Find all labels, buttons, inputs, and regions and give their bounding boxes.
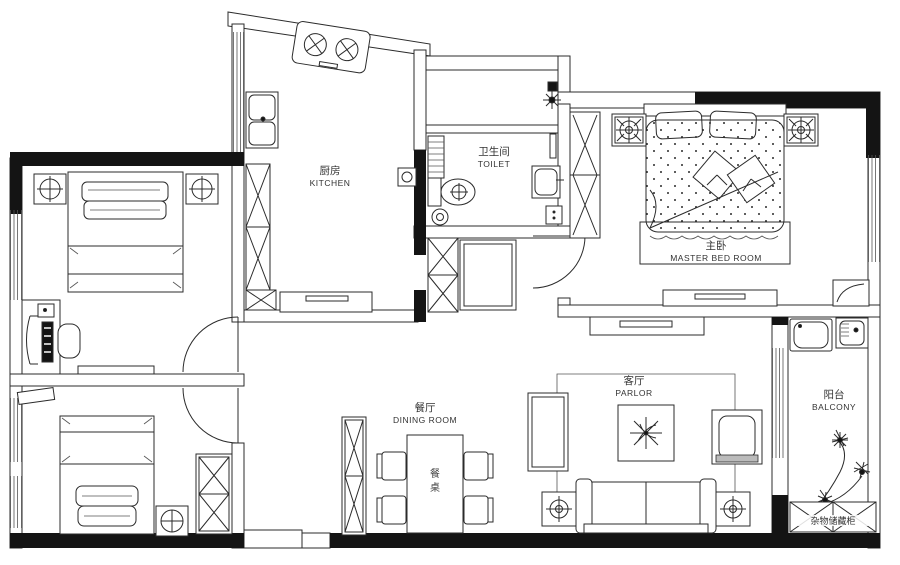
bedroom1-bed bbox=[68, 172, 183, 292]
desk-with-computer bbox=[22, 300, 80, 374]
toilet-label-en: TOILET bbox=[478, 159, 511, 169]
bedroom-1 bbox=[22, 172, 218, 374]
bedroom1-nightstand-left bbox=[34, 174, 66, 204]
balcony-sink bbox=[836, 318, 868, 348]
master-nightstand-left bbox=[612, 114, 646, 146]
balcony bbox=[790, 318, 876, 532]
bedroom1-shelf bbox=[78, 366, 154, 374]
wash-basin bbox=[532, 166, 564, 198]
gas-meter bbox=[398, 168, 416, 186]
bedroom1-nightstand-right bbox=[186, 174, 218, 204]
armchair bbox=[712, 410, 762, 464]
coffee-table-with-plant bbox=[618, 405, 674, 461]
dining-room-label-en: DINING ROOM bbox=[393, 415, 457, 425]
bedroom2-wardrobe bbox=[196, 454, 232, 534]
master-nightstand-right bbox=[784, 114, 818, 146]
kitchen-label-zh: 厨房 bbox=[320, 164, 341, 177]
sofa bbox=[576, 479, 716, 533]
floor-plan: 厨房 KITCHEN 卫生间 TOILET 主卧 MASTER BED ROOM… bbox=[0, 0, 900, 565]
lamp-table-right bbox=[716, 492, 750, 526]
bedroom2-shelf bbox=[17, 388, 54, 405]
storage-cabinet-label: 杂物储藏柜 bbox=[810, 515, 855, 526]
bedroom-2 bbox=[17, 388, 232, 536]
kitchen-sink bbox=[246, 92, 278, 148]
lamp-table-left bbox=[542, 492, 576, 526]
bedroom2-bed bbox=[60, 416, 154, 534]
bedroom2-nightstand bbox=[156, 506, 188, 536]
master-dresser bbox=[663, 290, 777, 306]
towel-rack bbox=[428, 136, 444, 178]
utility-box bbox=[546, 206, 562, 224]
master-bedroom bbox=[570, 104, 869, 306]
dining-table-label-bottom: 桌 bbox=[430, 481, 440, 494]
master-bedroom-label-en: MASTER BED ROOM bbox=[670, 253, 762, 263]
air-conditioner bbox=[833, 280, 869, 306]
dining-cabinet bbox=[342, 417, 366, 535]
master-bed bbox=[644, 104, 786, 239]
stove bbox=[291, 21, 371, 74]
parlor-label-zh: 客厅 bbox=[624, 374, 645, 387]
hallway bbox=[428, 238, 516, 312]
kitchen-cabinet-column bbox=[246, 164, 270, 290]
kitchen-south-cabinet bbox=[246, 290, 372, 312]
toilet-label-zh: 卫生间 bbox=[478, 145, 510, 158]
washing-machine bbox=[790, 319, 832, 351]
fridge bbox=[460, 240, 516, 310]
dining-room bbox=[342, 417, 493, 535]
master-wardrobe bbox=[570, 112, 600, 238]
master-bedroom-label-zh: 主卧 bbox=[706, 239, 727, 252]
bedroom2-door bbox=[183, 388, 238, 443]
parlor bbox=[528, 317, 762, 533]
parlor-sideboard bbox=[590, 317, 704, 335]
kitchen-label-en: KITCHEN bbox=[310, 178, 351, 188]
tv-cabinet bbox=[528, 393, 568, 471]
parlor-label-en: PARLOR bbox=[615, 388, 652, 398]
floor-drain bbox=[432, 209, 448, 225]
master-bedroom-door bbox=[533, 236, 585, 288]
balcony-label-en: BALCONY bbox=[812, 402, 856, 412]
dining-room-label-zh: 餐厅 bbox=[415, 401, 436, 414]
floor-plan-page: 厨房 KITCHEN 卫生间 TOILET 主卧 MASTER BED ROOM… bbox=[0, 0, 900, 565]
toilet-bowl bbox=[428, 178, 475, 206]
bedroom1-door bbox=[183, 317, 238, 372]
hall-cabinet bbox=[428, 238, 458, 312]
dining-table-label-top: 餐 bbox=[430, 467, 440, 480]
balcony-label-zh: 阳台 bbox=[824, 388, 845, 401]
